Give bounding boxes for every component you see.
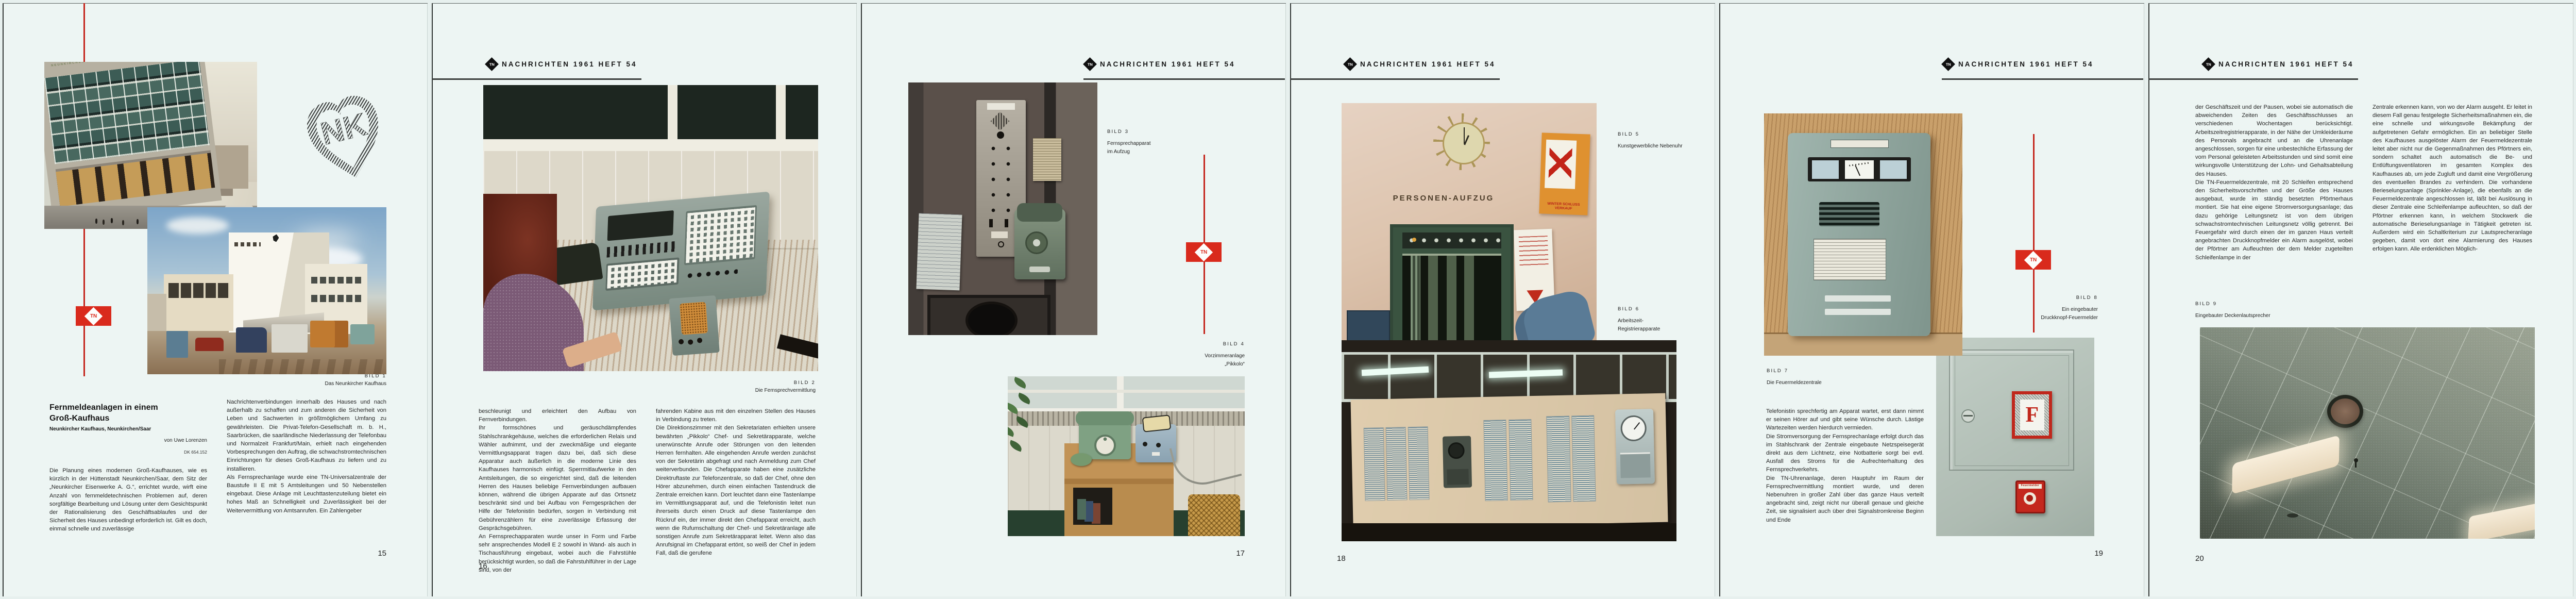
leaves bbox=[1012, 377, 1028, 389]
card-rack bbox=[1571, 415, 1596, 502]
tn-red-mark: TN bbox=[1186, 242, 1222, 262]
caption-text: Arbeitszeit- bbox=[1618, 317, 1705, 325]
fluorescent-light bbox=[1489, 370, 1563, 378]
sprinkler-stem bbox=[2355, 461, 2357, 468]
alarm-cabinet bbox=[1788, 133, 1930, 337]
body-column-left: Die Planung eines modernen Groß-Kaufhaus… bbox=[49, 467, 207, 534]
tn-diamond-logo: TN bbox=[1083, 57, 1097, 71]
stamp-slot bbox=[1620, 452, 1651, 478]
maker-plate bbox=[1831, 140, 1889, 148]
dk-number: DK 654.152 bbox=[49, 450, 207, 455]
body-column-right: Zentrale erkennen kann, von wo der Alarm… bbox=[2372, 103, 2532, 254]
door-lower bbox=[927, 295, 1051, 335]
lamp-row bbox=[1402, 232, 1501, 248]
window-row bbox=[311, 277, 361, 284]
paragraph: der Geschäftszeit und der Pausen, wobei … bbox=[2195, 103, 2353, 178]
dark-window bbox=[483, 85, 818, 142]
photo-bild9-ceiling-speaker bbox=[2200, 327, 2535, 539]
white-truck bbox=[272, 324, 308, 353]
floor bbox=[1342, 523, 1676, 541]
handset bbox=[1017, 203, 1062, 222]
tn-red-mark: TN bbox=[76, 306, 111, 326]
caption-text: Druckknopf-Feuermelder bbox=[1985, 314, 2098, 322]
ceiling-fitting bbox=[2287, 513, 2298, 518]
photo-bild7-feuermeldezentrale bbox=[1764, 113, 1962, 356]
article-subtitle: Neunkircher Kaufhaus, Neunkirchen/Saar bbox=[49, 426, 214, 432]
caption-label: BILD 3 bbox=[1107, 128, 1151, 136]
paragraph: Zentrale erkennen kann, von wo der Alarm… bbox=[2372, 103, 2532, 254]
handset-grille bbox=[680, 302, 708, 335]
paragraph: Ihr formschönes und geräuschdämpfendes S… bbox=[479, 424, 636, 533]
handset bbox=[1076, 411, 1134, 425]
tn-diamond-logo: TN bbox=[1941, 57, 1955, 71]
card-rack bbox=[1364, 427, 1385, 501]
wet-ground bbox=[219, 359, 386, 374]
title-line-1: Fernmeldeanlagen in einem bbox=[49, 402, 214, 413]
department-store-facade: NEUNKIRCHER KAUFHAUS bbox=[44, 62, 222, 221]
knob-slot bbox=[1963, 415, 1973, 417]
paragraph: Die TN-Uhrenanlage, deren Hauptuhr im Ra… bbox=[1766, 474, 1924, 524]
caption-label: BILD 6 bbox=[1618, 305, 1705, 313]
paragraph: beschleunigt und erleichtert den Aufbau … bbox=[479, 407, 636, 424]
header-title: NACHRICHTEN 1961 HEFT 54 bbox=[1958, 60, 2094, 68]
shelf-shadow bbox=[1073, 488, 1112, 525]
body-column-left: der Geschäftszeit und der Pausen, wobei … bbox=[2195, 103, 2353, 262]
caption-text: Die Fernsprechvermittlung bbox=[651, 387, 816, 395]
page-header: TN NACHRICHTEN 1961 HEFT 54 bbox=[1943, 57, 2094, 71]
card-rack bbox=[1483, 420, 1507, 501]
ceiling-speaker bbox=[2327, 395, 2363, 428]
microphone-bar bbox=[1142, 414, 1172, 432]
caption-text: Fernsprechapparat bbox=[1107, 140, 1151, 148]
switchboard-console bbox=[592, 192, 770, 311]
speaker-grille bbox=[990, 111, 1009, 130]
clouds bbox=[166, 217, 229, 234]
caption-text: im Aufzug bbox=[1107, 148, 1151, 156]
caption-text: Eingebauter Deckenlautsprecher bbox=[2195, 312, 2270, 320]
caption-text: Ein eingebauter bbox=[1985, 306, 2098, 314]
instruction-card bbox=[1814, 239, 1886, 280]
elevator-portal bbox=[1390, 224, 1514, 356]
paragraph: Nachrichtenverbindungen innerhalb des Ha… bbox=[227, 398, 386, 473]
green-telephone bbox=[1079, 418, 1131, 460]
switch-slots bbox=[989, 219, 993, 227]
photo-bild5-personen-aufzug: PERSONEN-AUFZUG WINTER SCHLUSS VERKAUF bbox=[1342, 103, 1597, 356]
photo-bild6-time-recorders bbox=[1342, 340, 1676, 541]
caption-label: BILD 7 bbox=[1767, 367, 1822, 375]
page-16: TN NACHRICHTEN 1961 HEFT 54 bbox=[429, 0, 858, 599]
meter-scale bbox=[1849, 162, 1870, 167]
single-button bbox=[997, 131, 1004, 139]
caption-bild-4: BILD 4 Vorzimmeranlage „Pikkolo“ bbox=[1090, 340, 1245, 369]
alarm-button bbox=[2026, 495, 2033, 502]
header-rule bbox=[1083, 78, 1285, 80]
fluorescent-light bbox=[1362, 367, 1429, 376]
caption-bild-1: BILD 1 Das Neunkircher Kaufhaus bbox=[222, 372, 386, 388]
wicker-basket bbox=[1188, 494, 1240, 536]
orange-truck bbox=[310, 321, 348, 347]
rotary-dial bbox=[1025, 231, 1048, 254]
paragraph: Als Fernsprechanlage wurde eine TN-Unive… bbox=[227, 473, 386, 515]
page-19: TN NACHRICHTEN 1961 HEFT 54 bbox=[1717, 0, 2146, 599]
paragraph: Die Direktionszimmer mit den Sekretariat… bbox=[656, 424, 816, 557]
header-rule bbox=[432, 78, 641, 80]
page-header: TN NACHRICHTEN 1961 HEFT 54 bbox=[2204, 57, 2354, 71]
vent-slots bbox=[234, 242, 261, 246]
f-alarm-box: F bbox=[2012, 391, 2052, 439]
tn-letters: TN bbox=[90, 313, 97, 319]
page-number: 15 bbox=[378, 549, 386, 558]
knob-row bbox=[606, 241, 676, 258]
page-number: 19 bbox=[2094, 549, 2103, 558]
tn-diamond-logo: TN bbox=[485, 57, 499, 71]
paragraph: Die Planung eines modernen Groß-Kaufhaus… bbox=[49, 467, 207, 534]
tn-diamond-logo: TN bbox=[1343, 57, 1357, 71]
panel-label bbox=[987, 103, 1014, 109]
gong-device bbox=[1443, 436, 1472, 488]
feuermelder-button-box: Feuermelder bbox=[2015, 480, 2045, 513]
page-number: 20 bbox=[2195, 554, 2204, 563]
plant bbox=[1008, 376, 1055, 469]
caption-label: BILD 4 bbox=[1090, 340, 1245, 348]
card-rack bbox=[1546, 416, 1571, 503]
caption-bild-3: BILD 3 Fernsprechapparat im Aufzug bbox=[1107, 128, 1151, 156]
caption-label: BILD 5 bbox=[1618, 130, 1705, 138]
display-field bbox=[607, 210, 674, 241]
caption-text: Kunstgewerbliche Nebenuhr bbox=[1618, 142, 1705, 151]
body-column-right: Nachrichtenverbindungen innerhalb des Ha… bbox=[227, 398, 386, 515]
card-rack bbox=[1408, 426, 1429, 500]
rotary-dial bbox=[1094, 435, 1116, 456]
page-20: TN NACHRICHTEN 1961 HEFT 54 der Geschäft… bbox=[2146, 0, 2575, 599]
signal-window bbox=[1880, 160, 1907, 179]
time-clock bbox=[1615, 409, 1654, 484]
caption-text: „Pikkolo“ bbox=[1090, 360, 1245, 369]
window-sill bbox=[483, 139, 818, 151]
card-rack-board bbox=[1350, 393, 1668, 528]
pedestrians bbox=[95, 219, 97, 224]
red-car bbox=[195, 338, 224, 351]
keyhole bbox=[998, 241, 1004, 247]
f-letter: F bbox=[2020, 400, 2045, 431]
pikkolo-intercom bbox=[1136, 424, 1176, 462]
caption-bild-7: BILD 7 Die Feuermeldezentrale bbox=[1767, 367, 1822, 387]
card-rack bbox=[1508, 419, 1533, 501]
caption-bild-8: BILD 8 Ein eingebauter Druckknopf-Feuerm… bbox=[1985, 294, 2098, 322]
caption-text: Die Feuermeldezentrale bbox=[1767, 379, 1822, 387]
body-column-right: fahrenden Kabine aus mit den einzelnen S… bbox=[656, 407, 816, 558]
clock-face bbox=[1620, 415, 1647, 441]
photo-bild1-street-view: NEUNKIRCHER KAUFHAUS bbox=[44, 62, 257, 229]
photo-bild8-druckknopf-feuermelder: F Feuermelder bbox=[1936, 338, 2094, 536]
magazine-spread-scan: NEUNKIRCHER KAUFHAUS NK bbox=[0, 0, 2576, 599]
poster-card bbox=[1545, 139, 1577, 189]
window-row bbox=[1808, 157, 1911, 181]
bus-front bbox=[166, 331, 188, 358]
key-field-right bbox=[686, 207, 755, 263]
header-title: NACHRICHTEN 1961 HEFT 54 bbox=[2218, 60, 2354, 68]
device-base bbox=[1447, 469, 1468, 485]
photo-bild2-switchboard bbox=[483, 85, 818, 371]
tn-red-mark: TN bbox=[2015, 250, 2051, 270]
paragraph: An Fernsprechapparaten wurde unser in Fo… bbox=[479, 533, 636, 574]
station-buttons bbox=[679, 339, 684, 344]
photo-bild3-elevator-phone bbox=[908, 82, 1097, 335]
wall-clock bbox=[1443, 122, 1485, 164]
button-column-right bbox=[1005, 141, 1012, 213]
aufzug-sign: PERSONEN-AUFZUG bbox=[1362, 194, 1526, 203]
elevator-telephone bbox=[1014, 209, 1065, 279]
meter-needle bbox=[1855, 165, 1860, 176]
page-header: TN NACHRICHTEN 1961 HEFT 54 bbox=[487, 57, 637, 71]
caption-bild-6: BILD 6 Arbeitszeit- Registrierapparate bbox=[1618, 305, 1705, 334]
meter-window bbox=[1845, 160, 1874, 179]
caption-label: BILD 9 bbox=[2195, 300, 2270, 308]
page-number: 16 bbox=[479, 562, 487, 571]
clock-hands bbox=[1634, 422, 1640, 430]
sale-poster: WINTER SCHLUSS VERKAUF bbox=[1539, 132, 1590, 215]
lock-knob bbox=[1961, 409, 1975, 423]
caption-bild-9: BILD 9 Eingebauter Deckenlautsprecher bbox=[2195, 300, 2270, 320]
phone-label bbox=[1029, 267, 1050, 272]
small-tag bbox=[991, 231, 1008, 238]
window-row bbox=[311, 295, 361, 302]
header-rule bbox=[1290, 78, 1500, 80]
photo-bild1-building-rear bbox=[147, 207, 386, 374]
caption-bild-2: BILD 2 Die Fernsprechvermittlung bbox=[651, 379, 816, 395]
body-column-left: Telefonistin sprechfertig am Apparat war… bbox=[1766, 407, 1924, 524]
notice-plate bbox=[1033, 138, 1061, 181]
paragraph: Die TN-Feuermeldezentrale, mit 20 Schlei… bbox=[2195, 178, 2353, 262]
red-x bbox=[1549, 142, 1572, 184]
porthole-window bbox=[965, 302, 1018, 335]
page-header: TN NACHRICHTEN 1961 HEFT 54 bbox=[1085, 57, 1235, 71]
header-rule bbox=[1942, 78, 2143, 80]
melder-label: Feuermelder bbox=[2019, 484, 2042, 489]
intercom-buttons bbox=[1143, 442, 1147, 446]
header-title: NACHRICHTEN 1961 HEFT 54 bbox=[1360, 60, 1496, 68]
article-byline: von Uwe Lorenzen bbox=[49, 438, 207, 443]
earpiece bbox=[1071, 453, 1092, 466]
drawer-handles bbox=[1825, 295, 1891, 302]
lit-lamp bbox=[1412, 238, 1416, 242]
card-rack bbox=[1385, 427, 1407, 501]
button-column-left bbox=[990, 141, 997, 213]
page-number: 18 bbox=[1337, 554, 1346, 563]
roof-emblem bbox=[273, 234, 279, 242]
annex-windows bbox=[168, 283, 229, 298]
window-grid bbox=[44, 62, 210, 164]
side-house bbox=[147, 294, 166, 330]
poster-text: WINTER SCHLUSS VERKAUF bbox=[1543, 202, 1584, 212]
device-dial bbox=[1448, 442, 1465, 459]
caption-text: Registrierapparate bbox=[1618, 325, 1705, 334]
caption-text: Das Neunkircher Kaufhaus bbox=[222, 380, 386, 388]
books bbox=[1077, 499, 1086, 520]
red-script-lines bbox=[1518, 236, 1549, 269]
caption-text: Vorzimmeranlage bbox=[1090, 352, 1245, 360]
caption-bild-5: BILD 5 Kunstgewerbliche Nebenuhr bbox=[1618, 130, 1705, 151]
photo-bild4-pikkolo bbox=[1008, 376, 1245, 536]
header-rule bbox=[2148, 78, 2358, 80]
dial-center bbox=[1033, 239, 1040, 246]
ceiling-tile-grid bbox=[2200, 327, 2535, 539]
page-15: NEUNKIRCHER KAUFHAUS NK bbox=[0, 0, 429, 599]
paragraph: fahrenden Kabine aus mit den einzelnen S… bbox=[656, 407, 816, 424]
paragraph: Die Stromversorgung der Fernsprechanlage… bbox=[1766, 432, 1924, 474]
caption-label: BILD 2 bbox=[651, 379, 816, 387]
blue-van bbox=[236, 327, 267, 353]
button-ring bbox=[2024, 492, 2036, 505]
annex-building bbox=[164, 274, 233, 331]
header-title: NACHRICHTEN 1961 HEFT 54 bbox=[1100, 60, 1235, 68]
page-number: 17 bbox=[1236, 549, 1245, 558]
paragraph: Telefonistin sprechfertig am Apparat war… bbox=[1766, 407, 1924, 432]
nk-kaufhaus-emblem: NK bbox=[306, 87, 385, 182]
directory-card bbox=[917, 213, 962, 290]
title-line-2: Groß-Kaufhaus bbox=[49, 413, 214, 424]
handset-station bbox=[669, 295, 720, 356]
body-column-left: beschleunigt und erleichtert den Aufbau … bbox=[479, 407, 636, 574]
round-button-row bbox=[685, 267, 738, 280]
page-18: TN NACHRICHTEN 1961 HEFT 54 PERSONEN-AUF… bbox=[1287, 0, 1717, 599]
header-title: NACHRICHTEN 1961 HEFT 54 bbox=[502, 60, 637, 68]
tn-diamond-logo: TN bbox=[2201, 57, 2215, 71]
article-title: Fernmeldeanlagen in einem Groß-Kaufhaus bbox=[49, 402, 214, 424]
teal-lorry bbox=[350, 324, 374, 344]
signal-window bbox=[1812, 160, 1839, 179]
intercom-switch bbox=[1152, 452, 1160, 456]
page-17: TN NACHRICHTEN 1961 HEFT 54 bbox=[858, 0, 1287, 599]
caption-label: BILD 8 bbox=[1985, 294, 2098, 302]
page-header: TN NACHRICHTEN 1961 HEFT 54 bbox=[1345, 57, 1496, 71]
vent-grille bbox=[1819, 202, 1879, 226]
